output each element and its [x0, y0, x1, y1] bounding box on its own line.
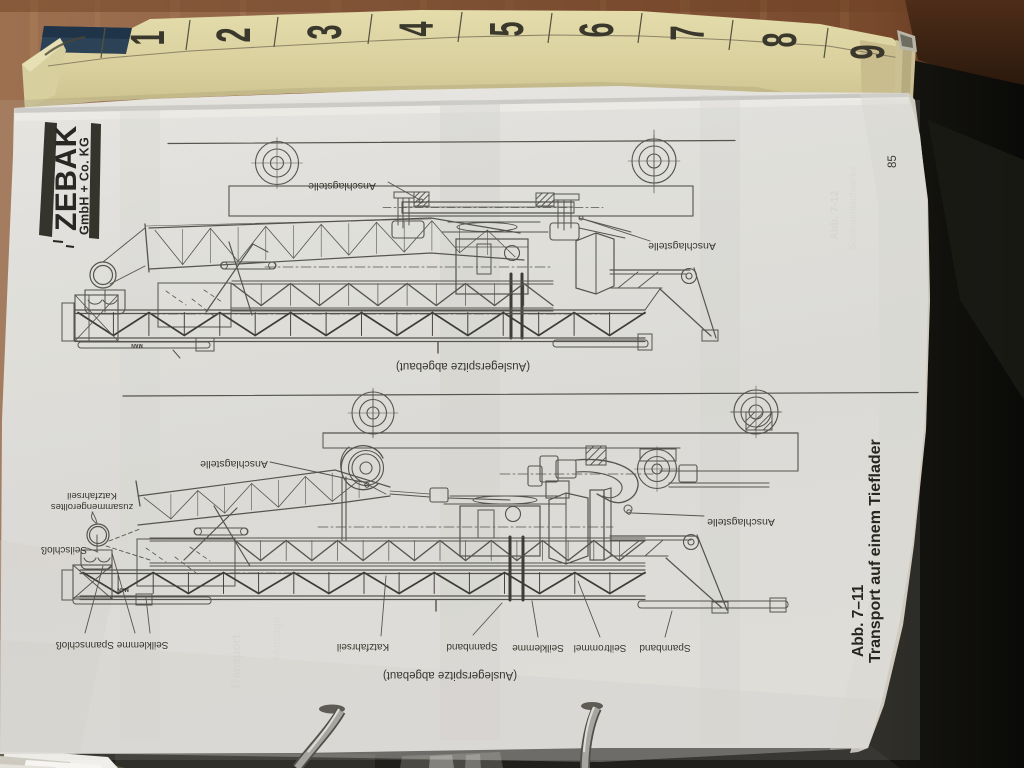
svg-text:GmbH + Co. KG: GmbH + Co. KG [78, 137, 92, 235]
svg-text:MAN: MAN [131, 342, 143, 348]
svg-text:1: 1 [121, 30, 175, 45]
svg-text:7: 7 [661, 25, 715, 40]
svg-text:Schienenlaufwerke: Schienenlaufwerke [848, 165, 859, 250]
svg-text:(Auslegerspitze abgebaut): (Auslegerspitze abgebaut) [396, 360, 530, 372]
svg-text:85: 85 [887, 155, 899, 168]
svg-text:Anschlagstelle: Anschlagstelle [707, 516, 775, 528]
svg-text:Seilklemme: Seilklemme [512, 642, 564, 653]
svg-text:9: 9 [841, 44, 895, 59]
svg-text:Abb. 7–11: Abb. 7–11 [850, 584, 867, 657]
svg-text:Anschlagstelle: Anschlagstelle [308, 180, 376, 192]
svg-text:4: 4 [390, 21, 444, 36]
svg-text:Seilschloß: Seilschloß [41, 544, 87, 555]
svg-text:Katzfahrseil: Katzfahrseil [67, 490, 117, 501]
svg-text:zusammengerolltes: zusammengerolltes [51, 501, 134, 512]
svg-text:3: 3 [298, 24, 352, 39]
svg-text:2: 2 [207, 27, 261, 42]
svg-text:Anschlagstelle: Anschlagstelle [200, 458, 268, 470]
svg-text:Seilklemme Spannschloß: Seilklemme Spannschloß [56, 639, 169, 650]
svg-text:8: 8 [753, 32, 807, 47]
svg-text:(Auslegerspitze abgebaut): (Auslegerspitze abgebaut) [383, 669, 517, 681]
svg-text:Abb. 7-12: Abb. 7-12 [829, 190, 841, 240]
svg-text:Spannband: Spannband [639, 642, 690, 653]
svg-text:Transport: Transport [229, 635, 243, 690]
svg-text:Seiltrommel: Seiltrommel [574, 642, 627, 653]
svg-text:5: 5 [480, 21, 534, 36]
svg-text:Anschlagstelle: Anschlagstelle [648, 240, 716, 252]
svg-text:Spannband: Spannband [446, 641, 497, 652]
svg-text:Montage: Montage [271, 617, 283, 660]
svg-text:Katzfahrseil: Katzfahrseil [337, 641, 389, 652]
svg-text:Transport auf einem Tieflader: Transport auf einem Tieflader [867, 439, 884, 663]
svg-text:6: 6 [570, 22, 624, 37]
